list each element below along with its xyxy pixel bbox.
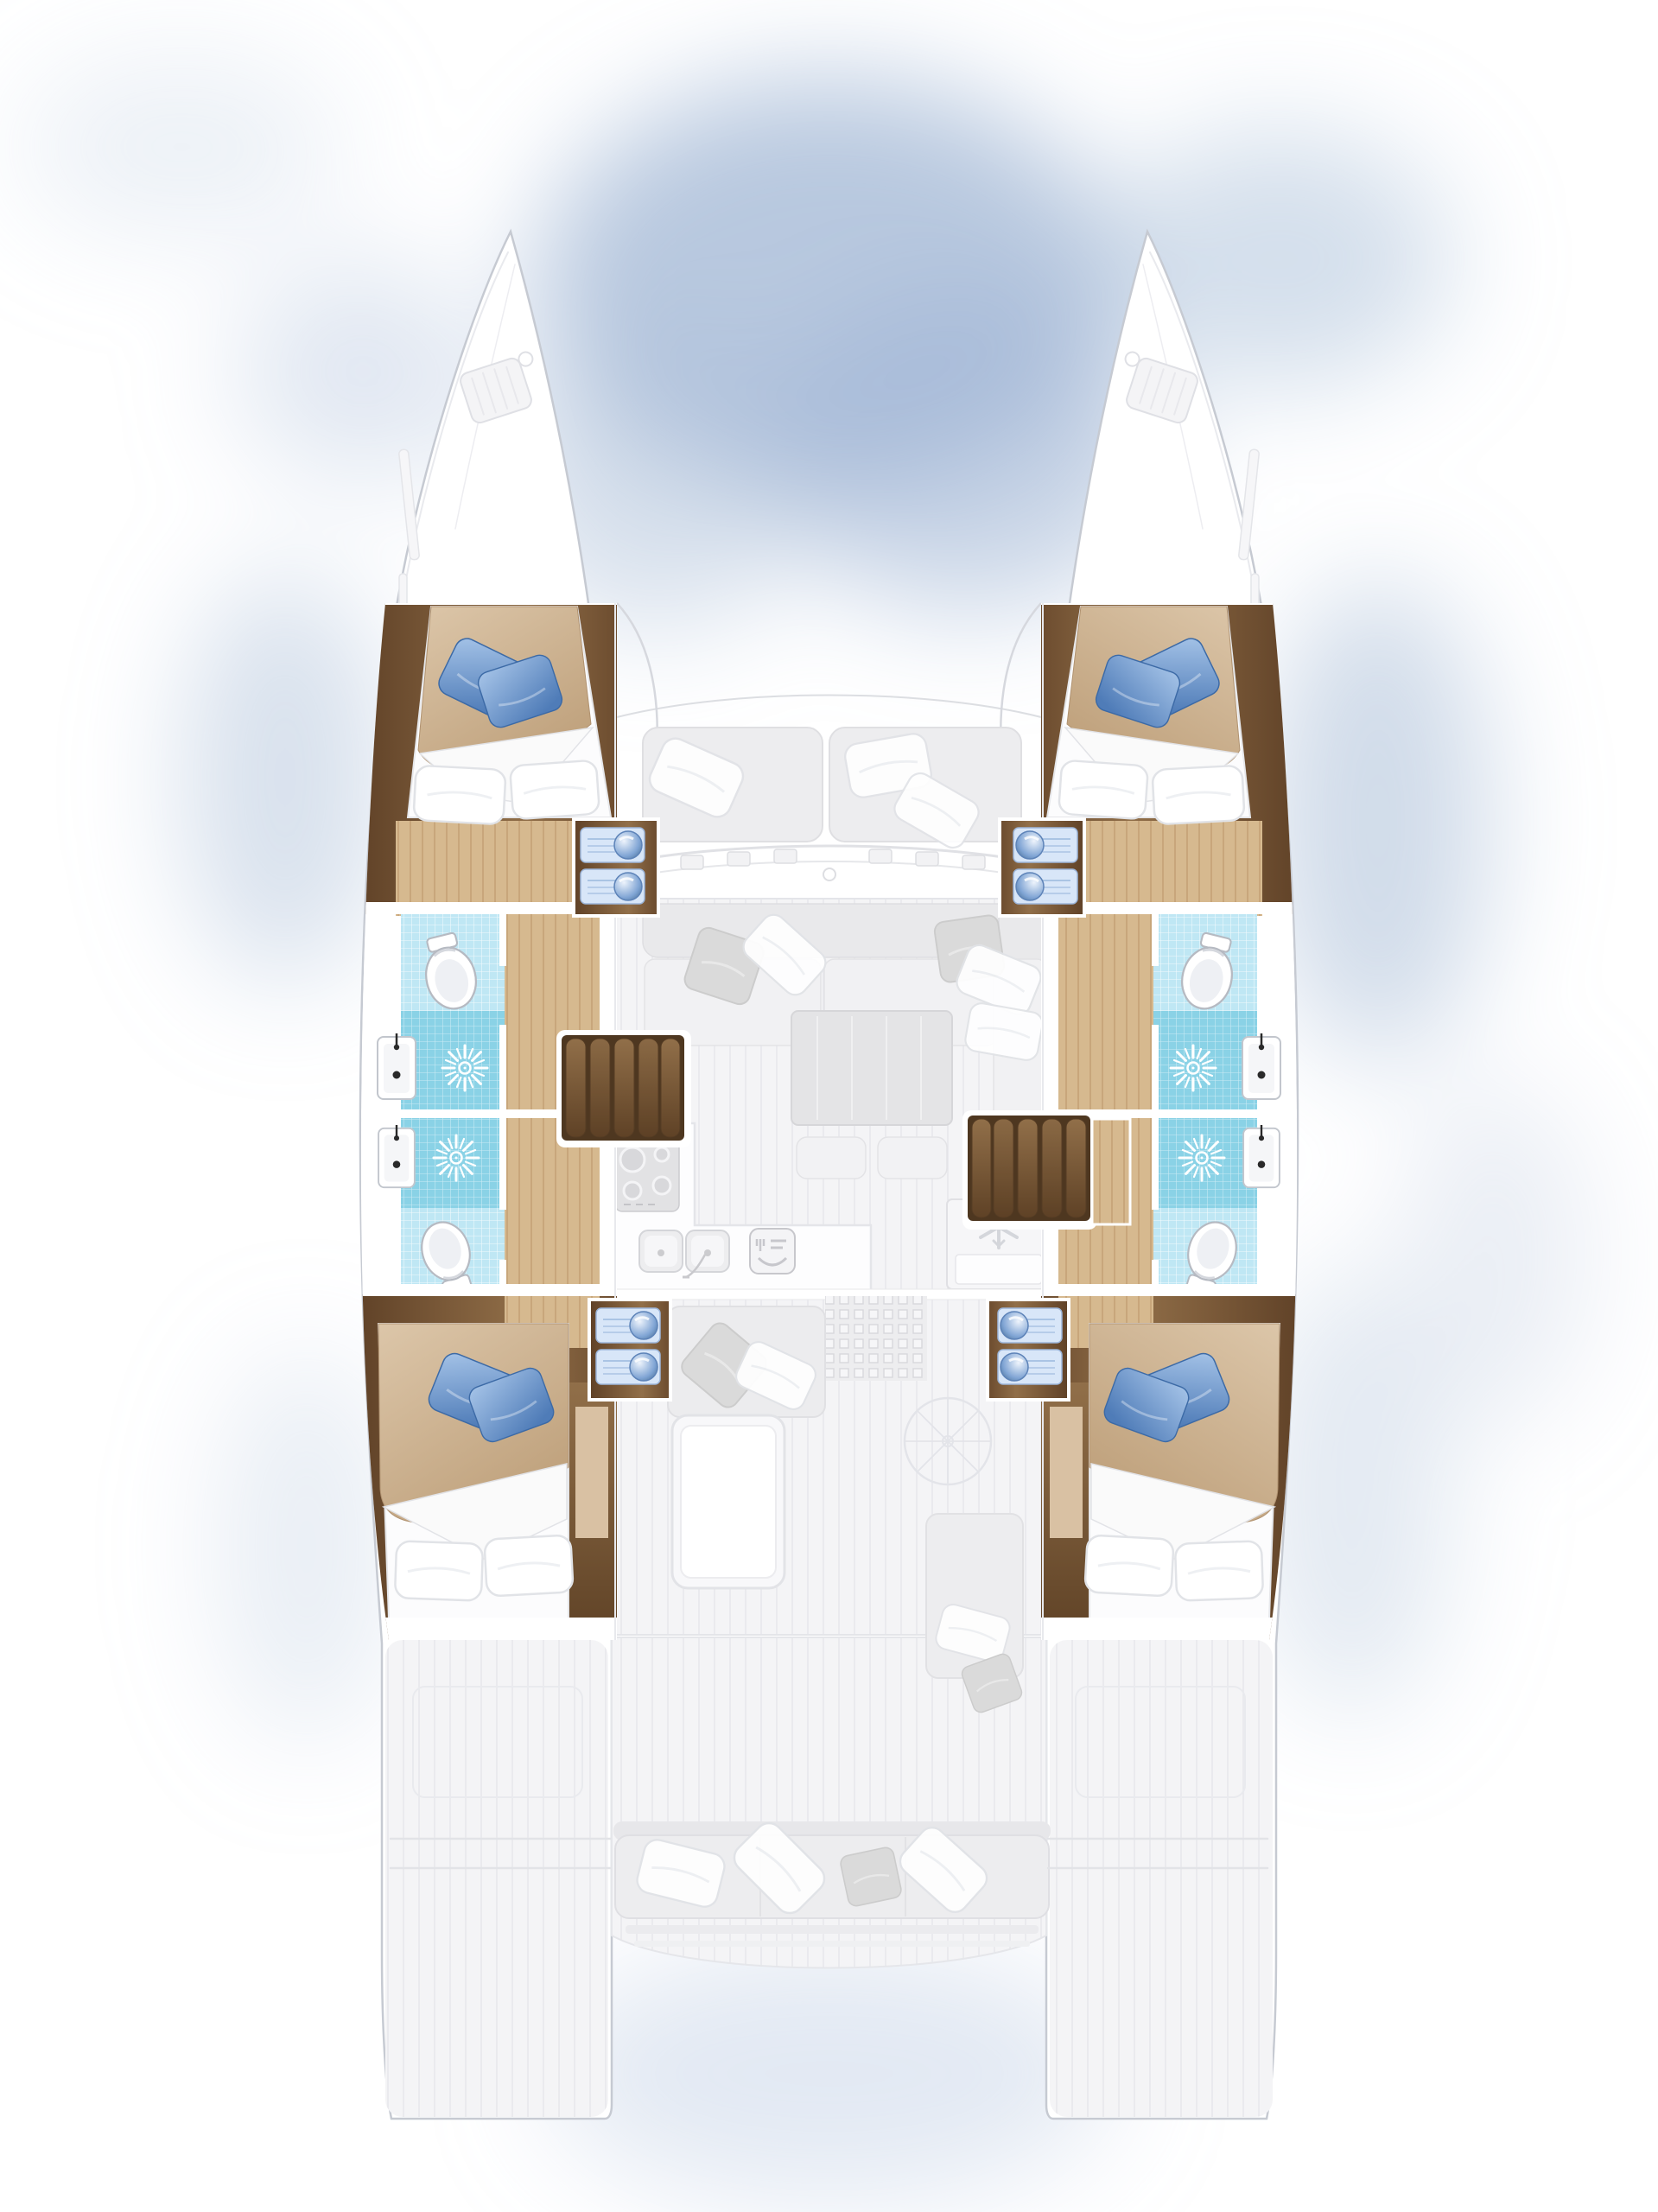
dishwasher-fork-plate-icon [750, 1229, 795, 1274]
cloud [1400, 1080, 1590, 1426]
doormat-grid-icon [825, 1296, 927, 1381]
bench-base-trim [626, 1925, 1039, 1934]
aft-cockpit-table [672, 1415, 785, 1588]
helm-wheel-icon [905, 1398, 991, 1484]
stair-treads-icon [968, 1116, 1090, 1221]
main-deck-faded [605, 603, 1054, 1968]
cloud [181, 570, 389, 985]
forward-cockpit-bench [643, 728, 1021, 852]
starboard-transom-deck [1050, 1640, 1273, 2117]
port-transom-deck [385, 1640, 608, 2117]
ottoman [797, 1137, 866, 1179]
pillow-icon [839, 1847, 902, 1908]
bench-base-trim [634, 1941, 1030, 1947]
saloon-dining-table [791, 1011, 952, 1125]
cooktop-burners-icon [615, 1137, 679, 1211]
cloud [1266, 579, 1490, 1063]
stern-bench [613, 1817, 1051, 1947]
starboard-stair-landing [1092, 1119, 1130, 1224]
floor-plan-canvas: const data = JSON.parse(document.getElem… [0, 0, 1658, 2212]
catamaran-floor-plan: const data = JSON.parse(document.getElem… [0, 0, 1658, 2212]
stair-treads-icon [562, 1035, 684, 1141]
cloud [544, 1944, 1115, 2203]
cloud [17, 52, 346, 242]
ottoman [878, 1137, 947, 1179]
